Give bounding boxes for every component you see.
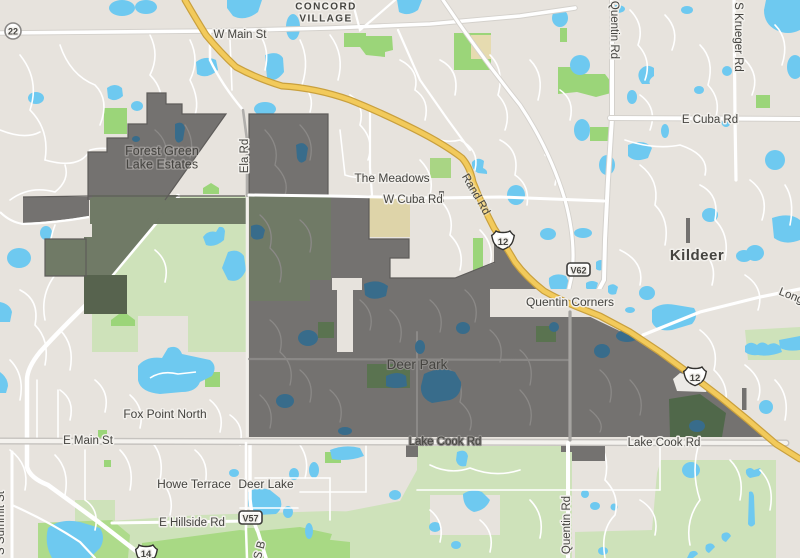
- svg-text:S Krueger Rd: S Krueger Rd: [732, 2, 744, 72]
- svg-text:E Cuba Rd: E Cuba Rd: [682, 114, 738, 126]
- svg-text:W Main St: W Main St: [213, 29, 267, 41]
- svg-text:V57: V57: [242, 514, 258, 524]
- svg-text:Lake Estates: Lake Estates: [126, 158, 198, 172]
- svg-text:S Summit St: S Summit St: [0, 490, 7, 555]
- svg-text:The Meadows: The Meadows: [354, 171, 429, 185]
- svg-text:Ela Rd: Ela Rd: [239, 139, 251, 174]
- svg-text:VILLAGE: VILLAGE: [299, 14, 352, 25]
- svg-text:E Main St: E Main St: [63, 435, 114, 447]
- svg-text:Fox Point North: Fox Point North: [123, 407, 206, 421]
- svg-text:V62: V62: [570, 266, 586, 276]
- svg-text:12: 12: [690, 373, 701, 384]
- svg-text:Quentin Corners: Quentin Corners: [526, 295, 614, 309]
- svg-text:Quentin Rd: Quentin Rd: [561, 496, 573, 554]
- svg-text:CONCORD: CONCORD: [295, 2, 356, 13]
- svg-text:Lake Cook Rd: Lake Cook Rd: [628, 437, 701, 449]
- svg-text:Howe Terrace: Howe Terrace: [157, 477, 231, 491]
- svg-text:Quentin Rd: Quentin Rd: [608, 1, 620, 59]
- svg-text:14: 14: [141, 549, 152, 558]
- svg-text:Deer Lake: Deer Lake: [238, 477, 294, 491]
- svg-text:12: 12: [498, 237, 509, 248]
- svg-text:W Cuba Rd: W Cuba Rd: [383, 194, 442, 206]
- svg-text:22: 22: [8, 27, 18, 37]
- svg-text:Deer Park: Deer Park: [387, 357, 448, 372]
- svg-text:Kildeer: Kildeer: [670, 247, 724, 264]
- svg-text:Lake Cook Rd: Lake Cook Rd: [409, 436, 482, 448]
- svg-text:Forest Green: Forest Green: [125, 144, 199, 158]
- svg-text:E Hillside Rd: E Hillside Rd: [159, 517, 225, 529]
